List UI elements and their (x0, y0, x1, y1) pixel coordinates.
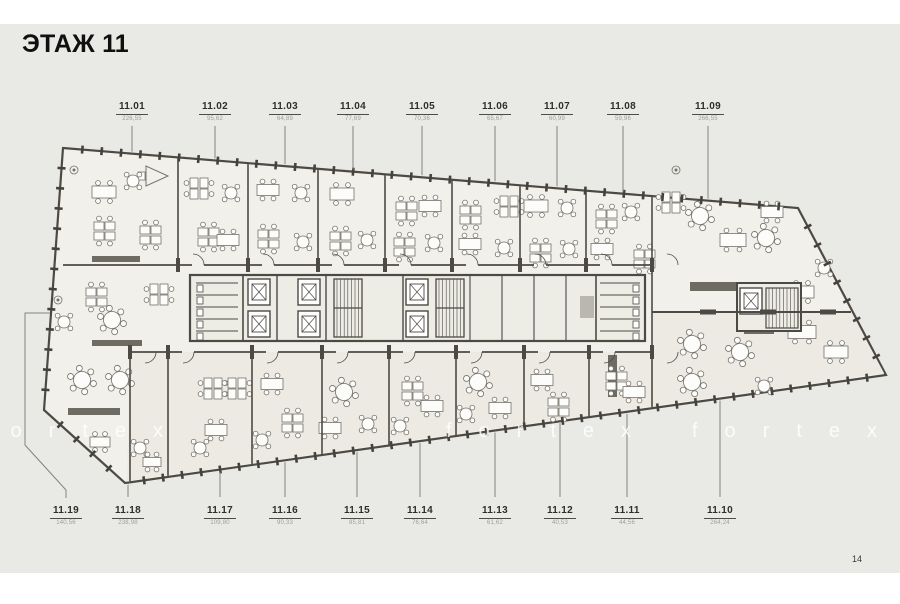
unit-label-11.13: 11.1361,62 (463, 500, 527, 526)
unit-number: 11.02 (199, 101, 231, 115)
unit-number: 11.17 (204, 505, 236, 519)
unit-number: 11.07 (541, 101, 573, 115)
unit-area: 140,56 (34, 520, 98, 526)
unit-area: 70,36 (390, 116, 454, 122)
unit-number: 11.18 (112, 505, 144, 519)
unit-number: 11.15 (341, 505, 373, 519)
page-number: 14 (845, 554, 869, 564)
unit-area: 90,33 (253, 520, 317, 526)
unit-label-11.07: 11.0760,99 (525, 96, 589, 122)
unit-number: 11.14 (404, 505, 436, 519)
unit-label-11.12: 11.1240,53 (528, 500, 592, 526)
floor-plan-page: fortex fortex fortex 11.01226,5511.0295,… (0, 0, 900, 604)
unit-area: 64,89 (253, 116, 317, 122)
unit-area: 109,80 (188, 520, 252, 526)
unit-label-11.02: 11.0295,62 (183, 96, 247, 122)
unit-label-11.15: 11.1585,81 (325, 500, 389, 526)
unit-label-11.17: 11.17109,80 (188, 500, 252, 526)
unit-area: 77,69 (321, 116, 385, 122)
unit-label-11.05: 11.0570,36 (390, 96, 454, 122)
unit-area: 40,53 (528, 520, 592, 526)
unit-area: 266,55 (676, 116, 740, 122)
unit-area: 76,64 (388, 520, 452, 526)
unit-label-11.09: 11.09266,55 (676, 96, 740, 122)
unit-label-11.10: 11.10264,24 (688, 500, 752, 526)
unit-number: 11.11 (611, 505, 642, 519)
unit-label-11.11: 11.1144,56 (595, 500, 659, 526)
unit-label-11.19: 11.19140,56 (34, 500, 98, 526)
unit-label-11.08: 11.0859,96 (591, 96, 655, 122)
unit-label-11.04: 11.0477,69 (321, 96, 385, 122)
unit-area: 60,99 (525, 116, 589, 122)
unit-area: 238,98 (96, 520, 160, 526)
page-title: ЭТАЖ 11 (22, 30, 129, 59)
unit-area: 44,56 (595, 520, 659, 526)
unit-number: 11.19 (50, 505, 82, 519)
unit-number: 11.10 (704, 505, 736, 519)
unit-number: 11.04 (337, 101, 369, 115)
unit-label-11.18: 11.18238,98 (96, 500, 160, 526)
unit-label-11.16: 11.1690,33 (253, 500, 317, 526)
unit-number: 11.12 (544, 505, 576, 519)
unit-label-11.06: 11.0665,67 (463, 96, 527, 122)
unit-area: 226,55 (100, 116, 164, 122)
unit-number: 11.13 (479, 505, 511, 519)
unit-number: 11.06 (479, 101, 511, 115)
unit-area: 65,67 (463, 116, 527, 122)
unit-area: 85,81 (325, 520, 389, 526)
unit-label-11.14: 11.1476,64 (388, 500, 452, 526)
unit-number: 11.16 (269, 505, 301, 519)
unit-area: 59,96 (591, 116, 655, 122)
unit-number: 11.01 (116, 101, 148, 115)
unit-number: 11.09 (692, 101, 724, 115)
unit-label-11.03: 11.0364,89 (253, 96, 317, 122)
unit-number: 11.03 (269, 101, 301, 115)
unit-area: 95,62 (183, 116, 247, 122)
unit-area: 264,24 (688, 520, 752, 526)
unit-number: 11.05 (406, 101, 438, 115)
unit-area: 61,62 (463, 520, 527, 526)
unit-label-11.01: 11.01226,55 (100, 96, 164, 122)
unit-number: 11.08 (607, 101, 639, 115)
